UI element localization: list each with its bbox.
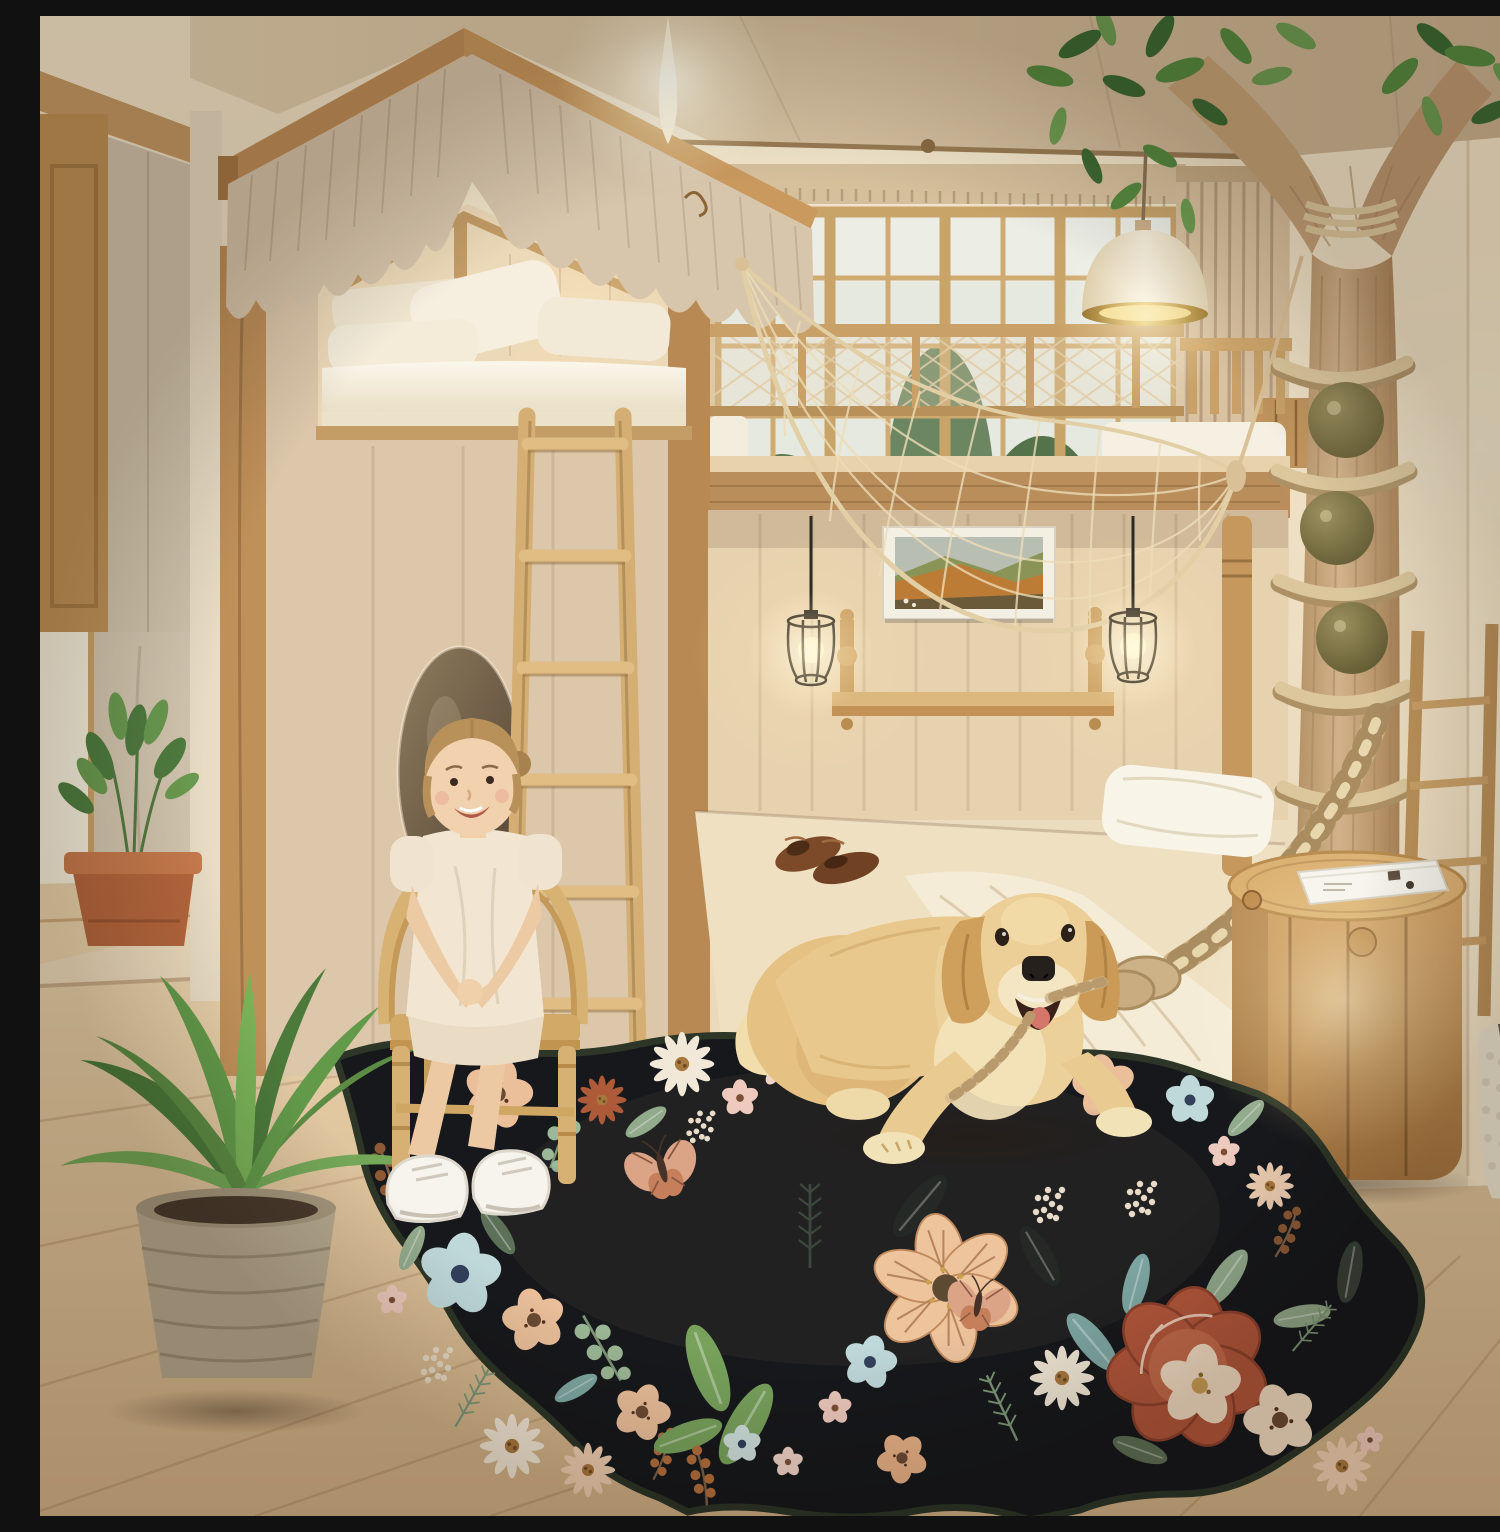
- scene-illustration: [40, 16, 1500, 1516]
- product-photo: Treehouse-themed children's bedroom: hou…: [40, 16, 1500, 1516]
- vignette: [40, 16, 1500, 1516]
